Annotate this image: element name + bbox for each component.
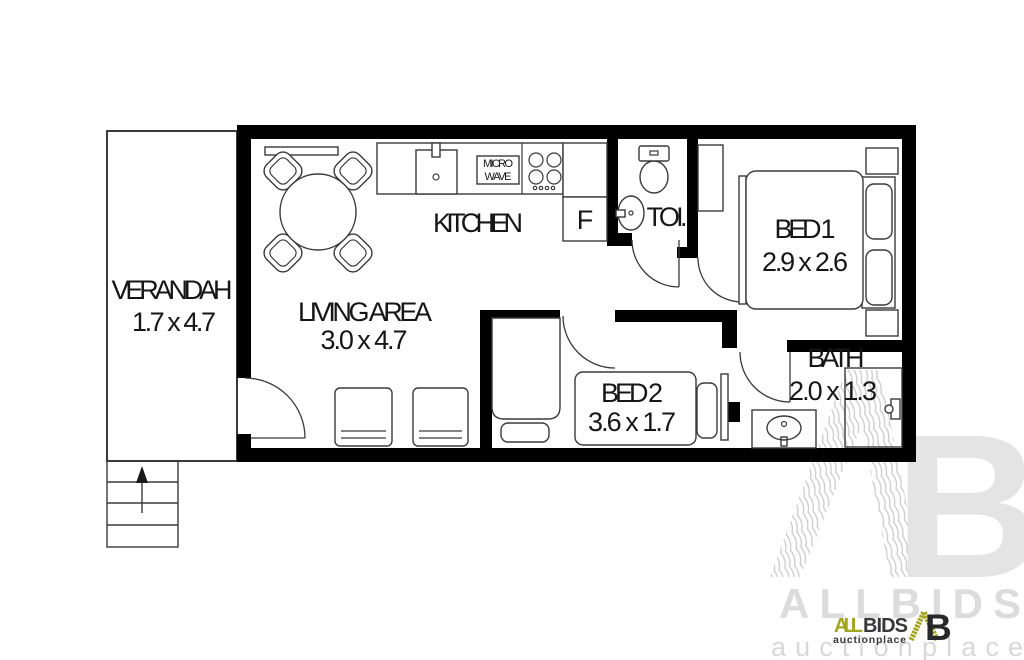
pillow-icon [501,423,549,442]
nightstand [866,310,898,336]
toilet-label: TOI. [647,202,688,232]
nightstand [866,148,898,174]
bed1-wardrobe [698,145,723,211]
fridge-label: F [577,205,594,235]
kitchen-label: KITCHEN [433,208,523,238]
bath-label: BATH [808,343,865,373]
microwave-label-line1: MICRO [483,158,513,170]
bed1-dims: 2.9 x 2.6 [762,247,848,277]
bed2-headboard [721,374,728,440]
floorplan-page: B ALLBIDS auctionplace [0,0,1024,660]
sink-tap-icon [432,143,440,157]
bed1-foot-board [739,176,746,304]
wall-shelf [265,147,338,155]
bed2-label: BED 2 [601,378,663,408]
verandah-label: VERANDAH [112,275,233,305]
basin-tap-icon [616,210,625,217]
dining-table [280,174,356,250]
bed2-single-bed [492,318,560,419]
floorplan-canvas: B ALLBIDS auctionplace [0,0,1024,660]
living-dims: 3.0 x 4.7 [321,325,408,355]
bath-dims: 2.0 x 1.3 [789,376,877,406]
logo-tagline-text: auctionplace [833,634,906,646]
logo-monogram-b-letter: B [925,607,952,648]
toilet-bowl-icon [640,161,668,193]
microwave-label-line2: WAVE [485,171,512,183]
corner-cupboard [563,143,607,197]
armchair [413,388,468,446]
pillow-icon [697,383,717,438]
pillow-icon [866,250,892,305]
living-label: LIVING AREA [298,297,432,327]
bed1-label: BED 1 [775,214,836,244]
bed2-dims: 3.6 x 1.7 [588,407,676,437]
toilet-cistern-icon [639,146,669,161]
verandah-dims: 1.7 x 4.7 [132,307,216,337]
armchair [335,388,392,446]
pillow-icon [866,184,892,239]
